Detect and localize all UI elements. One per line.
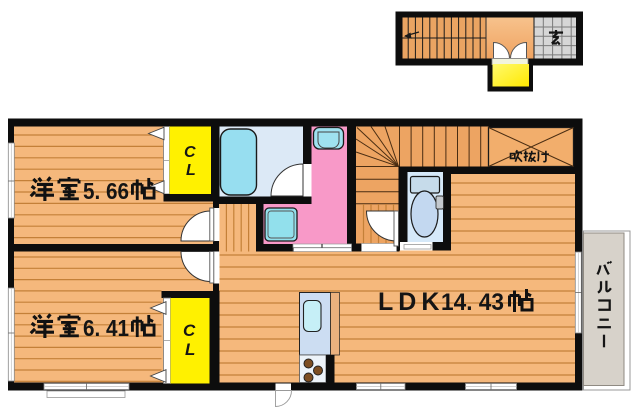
svg-text:C: C <box>184 144 196 161</box>
svg-text:14. 43: 14. 43 <box>441 289 504 316</box>
svg-text:L: L <box>186 162 196 179</box>
svg-text:L: L <box>185 340 195 359</box>
svg-text:5. 66: 5. 66 <box>83 178 129 204</box>
svg-text:C: C <box>183 321 196 340</box>
svg-text:6. 41: 6. 41 <box>83 315 129 341</box>
svg-text:LDK: LDK <box>378 288 444 316</box>
